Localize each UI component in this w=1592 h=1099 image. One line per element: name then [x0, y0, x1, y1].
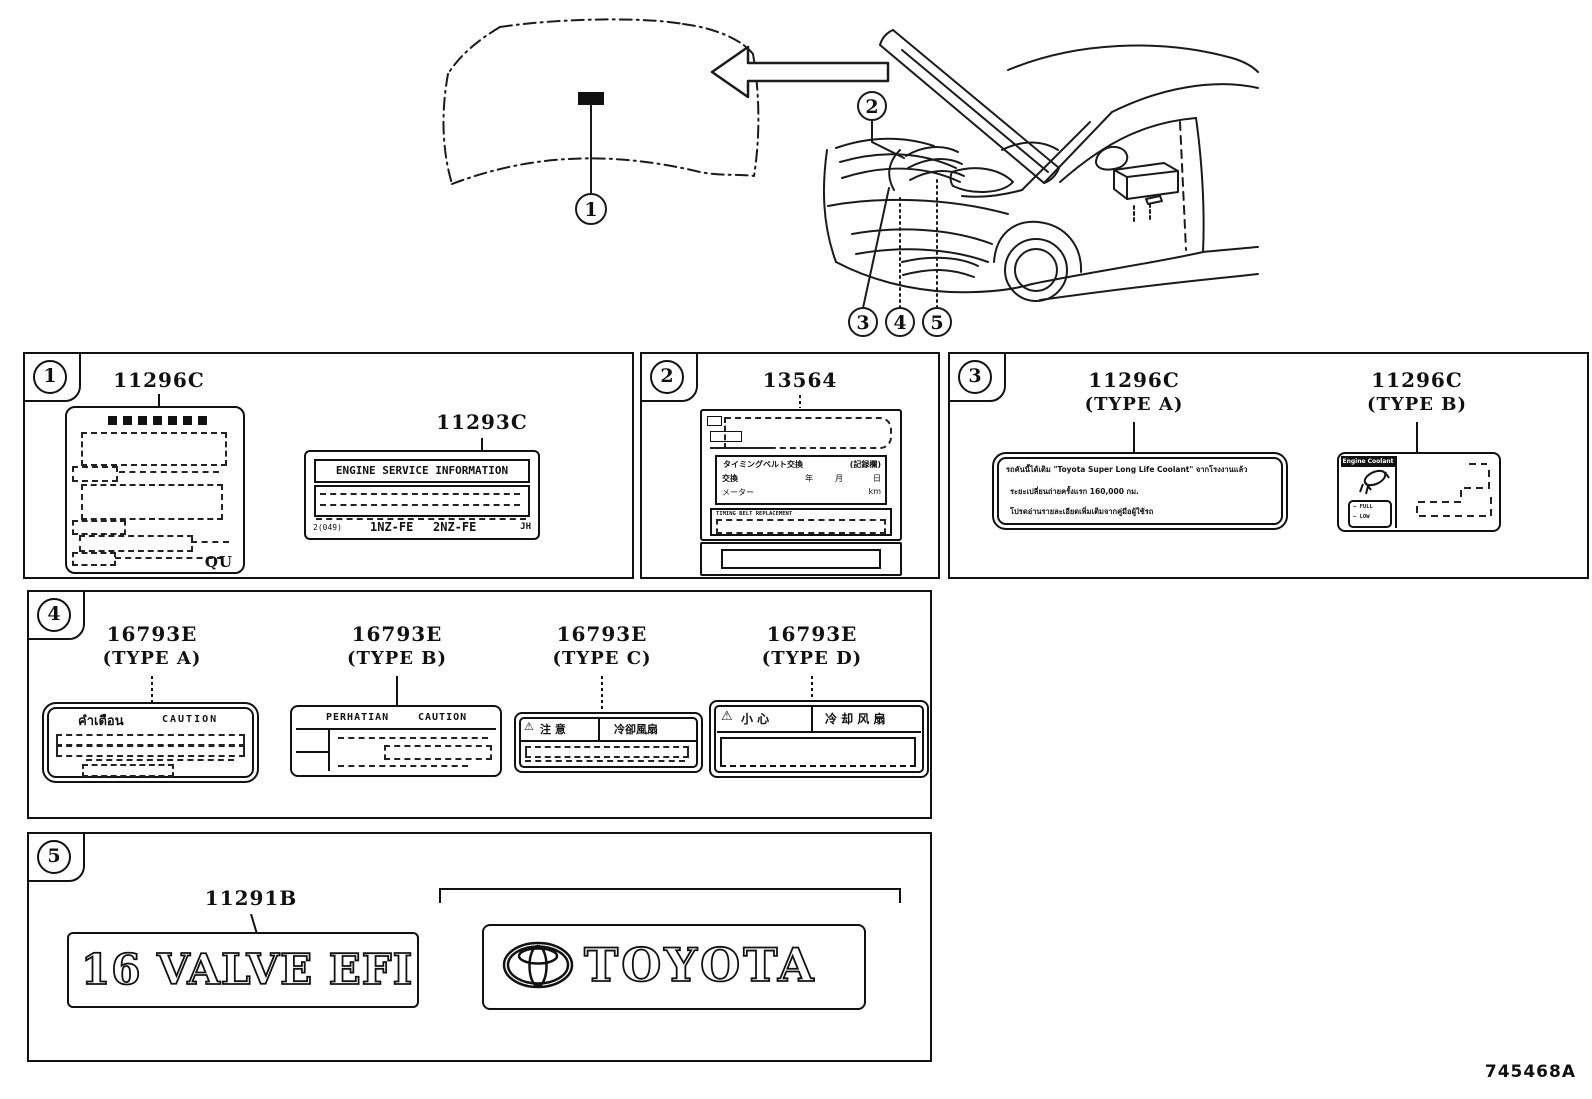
caution-d-right: 冷 却 风 扇 [825, 710, 886, 727]
plate-divider [1395, 456, 1397, 528]
callout-markers [576, 92, 951, 336]
esi-field-line [320, 504, 520, 506]
group-5-badge: 5 [37, 840, 71, 874]
plate-divider [328, 728, 330, 771]
arrow-icon [712, 47, 888, 97]
esi-engine1: 1NZ-FE [370, 520, 413, 534]
toyota-name-plate: TOYOTA [482, 924, 866, 1010]
caution-a-english: CAUTION [162, 714, 218, 725]
plate-divider [717, 731, 921, 733]
toyota-text: TOYOTA [584, 938, 817, 992]
plate-text-line [710, 447, 774, 449]
plate-divider [811, 707, 813, 731]
plate-text-block [716, 519, 886, 534]
thai-line-2: ระยะเปลี่ยนถ่ายครั้งแรก 160,000 กม. [1010, 486, 1139, 498]
valve-efi-text: 16 VALVE EFI [81, 945, 413, 994]
caution-plate-type-d: ⚠ 小 心 冷 却 风 扇 [709, 700, 929, 778]
thai-line-1: รถคันนี้ได้เติม "Toyota Super Long Life … [1006, 464, 1247, 476]
esi-field-line [320, 493, 520, 495]
leader-line [811, 676, 813, 700]
belt-row-replace: 交換 [722, 473, 738, 484]
plate-corner-code: QU [205, 553, 233, 571]
esi-code: 2(049) [313, 523, 342, 532]
esi-title-bar: ENGINE SERVICE INFORMATION [314, 459, 530, 483]
belt-record-field: (記録欄) [850, 459, 881, 470]
plate-text-block [72, 552, 116, 566]
group-5-tab: 5 [27, 832, 85, 882]
group-1-badge: 1 [33, 360, 67, 394]
leader-line [158, 394, 160, 406]
plate-text-block [72, 466, 118, 482]
parts-diagram-page: 1 2 3 4 5 1 11296C QU 11 [0, 0, 1592, 1099]
warning-triangle-icon: ⚠ [721, 709, 733, 724]
plate-text-block [72, 520, 126, 535]
plate-text-line [338, 737, 488, 739]
part-number-11296c-typeb: 11296C [1371, 368, 1463, 392]
callout-1-number: 1 [584, 199, 597, 221]
figure-number: 745468A [1485, 1062, 1576, 1082]
caution-d-left: 小 心 [741, 710, 769, 727]
coolant-caution-plate: QU [65, 406, 245, 574]
plate-text-block [721, 549, 881, 569]
timing-belt-plate: タイミングベルト交換 (記録欄) 交換 年 月 日 メーター km TIMING… [700, 409, 902, 541]
part-type-16793e-c: (TYPE C) [552, 648, 651, 669]
warning-triangle-icon: ⚠ [524, 720, 534, 733]
valve-efi-badge-art: 16 VALVE EFI [69, 934, 413, 1002]
part-number-16793e-d: 16793E [767, 622, 858, 646]
plate-text-block [707, 416, 722, 426]
belt-unit-day: 日 [873, 473, 881, 484]
leader-line [151, 676, 153, 702]
belt-notice-text: TIMING BELT REPLACEMENT [716, 511, 792, 517]
plate-text-block [720, 737, 916, 767]
leader-line [481, 438, 483, 450]
callout-2-number: 2 [865, 96, 878, 118]
plate-text-line [338, 765, 468, 767]
belt-row-meter: メーター [722, 487, 754, 498]
plate-divider [296, 751, 328, 753]
group-2-box: 2 13564 タイミングベルト交換 (記録欄) 交換 年 月 日 メーター k… [640, 352, 940, 579]
part-type-a: (TYPE A) [1085, 394, 1184, 415]
plate-text-line [86, 759, 234, 761]
coolant-diagram-steps [1399, 458, 1495, 526]
plate-text-block [81, 432, 227, 466]
plate-text-block [81, 484, 223, 520]
esi-field-box [314, 485, 530, 517]
group-3-tab: 3 [948, 352, 1006, 402]
group-3-box: 3 11296C (TYPE A) รถคันนี้ได้เติม "Toyot… [948, 352, 1589, 579]
coolant-low-mark: — LOW [1353, 514, 1370, 520]
plate-text-block [82, 764, 174, 777]
part-number-16793e-b: 16793E [352, 622, 443, 646]
part-type-b: (TYPE B) [1367, 394, 1467, 415]
esi-engine2: 2NZ-FE [433, 520, 476, 534]
part-number-11296c-g1: 11296C [113, 368, 205, 392]
callout-3-number: 3 [856, 312, 869, 334]
caution-b-english: CAUTION [418, 712, 467, 723]
plate-text-block [710, 431, 742, 442]
plate-text-block [384, 745, 492, 760]
engine-coolant-plate: Engine Coolant — FULL — LOW [1337, 452, 1501, 532]
engine-coolant-title: Engine Coolant [1341, 456, 1395, 467]
coolant-level-box: — FULL — LOW [1348, 500, 1392, 528]
plate-divider [521, 740, 696, 742]
group-5-box: 5 11291B 16 VALVE EFI TOYOTA [27, 832, 932, 1062]
thai-line-3: โปรดอ่านรายละเอียดเพิ่มเติมจากคู่มือผู้ใ… [1010, 506, 1153, 518]
plate-divider [598, 718, 600, 740]
grouping-bracket [439, 888, 901, 903]
caution-c-left: 注 意 [540, 721, 566, 737]
part-number-16793e-a: 16793E [107, 622, 198, 646]
vehicle-location-diagram: 1 2 3 4 5 [0, 0, 1592, 352]
callout-5-number: 5 [930, 312, 943, 334]
esi-field-line [316, 518, 526, 520]
caution-c-right: 冷卻風扇 [614, 721, 658, 737]
plate-header-glyphs [108, 416, 207, 425]
part-type-16793e-b: (TYPE B) [347, 648, 447, 669]
group-3-badge: 3 [958, 360, 992, 394]
toyota-badge-art: TOYOTA [484, 926, 860, 1004]
part-number-13564: 13564 [763, 368, 838, 392]
hood-label-position-marker [578, 92, 604, 105]
leader-line [1133, 422, 1135, 452]
blank-plate [700, 542, 902, 576]
toyota-emblem-icon [504, 943, 572, 987]
group-4-tab: 4 [27, 590, 85, 640]
group-2-badge: 2 [650, 360, 684, 394]
belt-unit-year: 年 [805, 473, 813, 484]
caution-plate-type-c: ⚠ 注 意 冷卻風扇 [514, 712, 703, 773]
leader-line [799, 395, 801, 408]
thai-coolant-plate: รถคันนี้ได้เติม "Toyota Super Long Life … [992, 452, 1288, 530]
esi-title: ENGINE SERVICE INFORMATION [316, 464, 528, 477]
esi-stamp: JH [520, 522, 531, 532]
plate-text-block [79, 535, 193, 552]
caution-plate-type-a: คำเตือน CAUTION [42, 702, 259, 783]
group-4-box: 4 16793E (TYPE A) คำเตือน CAUTION 16793E… [27, 590, 932, 819]
leader-line [1416, 422, 1418, 452]
group-1-tab: 1 [23, 352, 81, 402]
caution-plate-type-b: PERHATIAN CAUTION [290, 705, 502, 777]
plate-text-line [191, 541, 229, 543]
plate-text-line [119, 471, 219, 473]
callout-4-number: 4 [893, 312, 906, 334]
belt-record-title: タイミングベルト交換 [723, 459, 803, 470]
caution-b-perhatian: PERHATIAN [326, 712, 389, 723]
plate-text-block [525, 746, 689, 758]
coolant-pour-icon [1345, 468, 1393, 500]
engine-service-info-plate: ENGINE SERVICE INFORMATION 2(049) 1NZ-FE… [304, 450, 540, 540]
caution-a-thai: คำเตือน [78, 710, 124, 731]
belt-unit-month: 月 [835, 473, 843, 484]
part-number-16793e-c: 16793E [557, 622, 648, 646]
belt-record-box: タイミングベルト交換 (記録欄) 交換 年 月 日 メーター km [715, 455, 887, 505]
group-4-badge: 4 [37, 598, 71, 632]
plate-text-block [56, 745, 245, 757]
plate-text-block [724, 417, 892, 449]
valve-efi-name-plate: 16 VALVE EFI [67, 932, 419, 1008]
part-number-11291b: 11291B [205, 886, 297, 910]
plate-divider [296, 728, 496, 730]
plate-text-line [525, 760, 685, 762]
coolant-full-mark: — FULL [1353, 504, 1373, 510]
leader-line [601, 676, 603, 712]
part-type-16793e-a: (TYPE A) [103, 648, 202, 669]
belt-unit-km: km [869, 487, 881, 496]
part-type-16793e-d: (TYPE D) [762, 648, 862, 669]
callout-3-leader [863, 188, 889, 308]
part-number-11293c: 11293C [436, 410, 528, 434]
group-2-tab: 2 [640, 352, 698, 402]
leader-line [396, 676, 398, 705]
belt-notice-box: TIMING BELT REPLACEMENT [710, 508, 892, 536]
part-number-11296c-typea: 11296C [1088, 368, 1180, 392]
group-1-box: 1 11296C QU 11293C ENGINE SERVICE INFORM… [23, 352, 634, 579]
